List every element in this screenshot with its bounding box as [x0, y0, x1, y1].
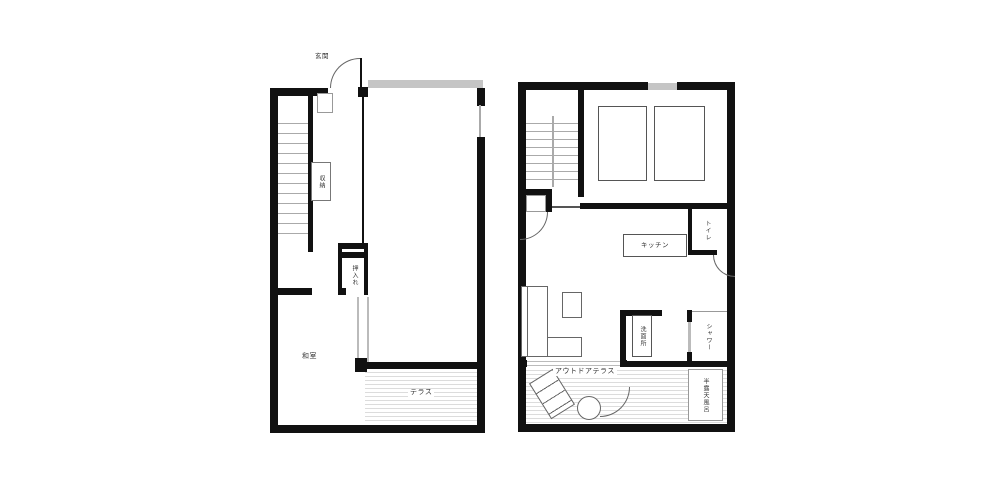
- wall-left: [518, 82, 526, 432]
- washroom-label: 洗面所: [634, 317, 650, 355]
- top-window-band: [648, 83, 677, 90]
- toilet-left-wall: [688, 209, 692, 250]
- stairs-divider: [552, 116, 554, 187]
- shower-glass-door: [688, 322, 691, 352]
- floor-plan-right: キッチン トイレ 洗面所 シャワー アウトドアテラス: [0, 0, 1000, 500]
- bed-2: [654, 106, 705, 181]
- toilet-door-arc: [713, 255, 735, 277]
- sofa-back-line: [527, 286, 528, 357]
- toilet-label: トイレ: [700, 213, 714, 247]
- stair-closet-box: [526, 195, 546, 212]
- sofa-seat: [547, 337, 582, 357]
- bedroom-left-wall: [578, 90, 584, 197]
- stairs-2f: [526, 116, 583, 187]
- living-glass-door: [527, 361, 622, 366]
- sofa-back: [521, 286, 548, 357]
- hall-door-arc: [520, 212, 548, 240]
- stair-closet-right-wall: [546, 189, 552, 212]
- wall-top-a: [518, 82, 648, 90]
- washroom-left-wall: [620, 310, 626, 367]
- outdoor-terrace-label: アウトドアテラス: [553, 368, 617, 376]
- kitchen-counter: キッチン: [623, 234, 687, 257]
- bed-1: [598, 106, 647, 181]
- shower-wall-top: [687, 310, 692, 322]
- wall-bottom: [518, 424, 735, 432]
- living-bottom-cap-right: [620, 360, 627, 367]
- deck-table: [577, 396, 601, 420]
- living-bottom-cap-left: [518, 360, 527, 367]
- coffee-table: [562, 292, 582, 318]
- landing-line: [552, 206, 580, 208]
- shower-top-line: [692, 311, 727, 312]
- floorplan-canvas: 玄関 収納 押入れ 和室 テラス: [0, 0, 1000, 500]
- open-air-bath-label: 半露天風呂: [697, 372, 713, 418]
- shower-label: シャワー: [701, 316, 715, 358]
- kitchen-label: キッチン: [641, 242, 669, 249]
- bedroom-bottom-wall: [580, 203, 727, 209]
